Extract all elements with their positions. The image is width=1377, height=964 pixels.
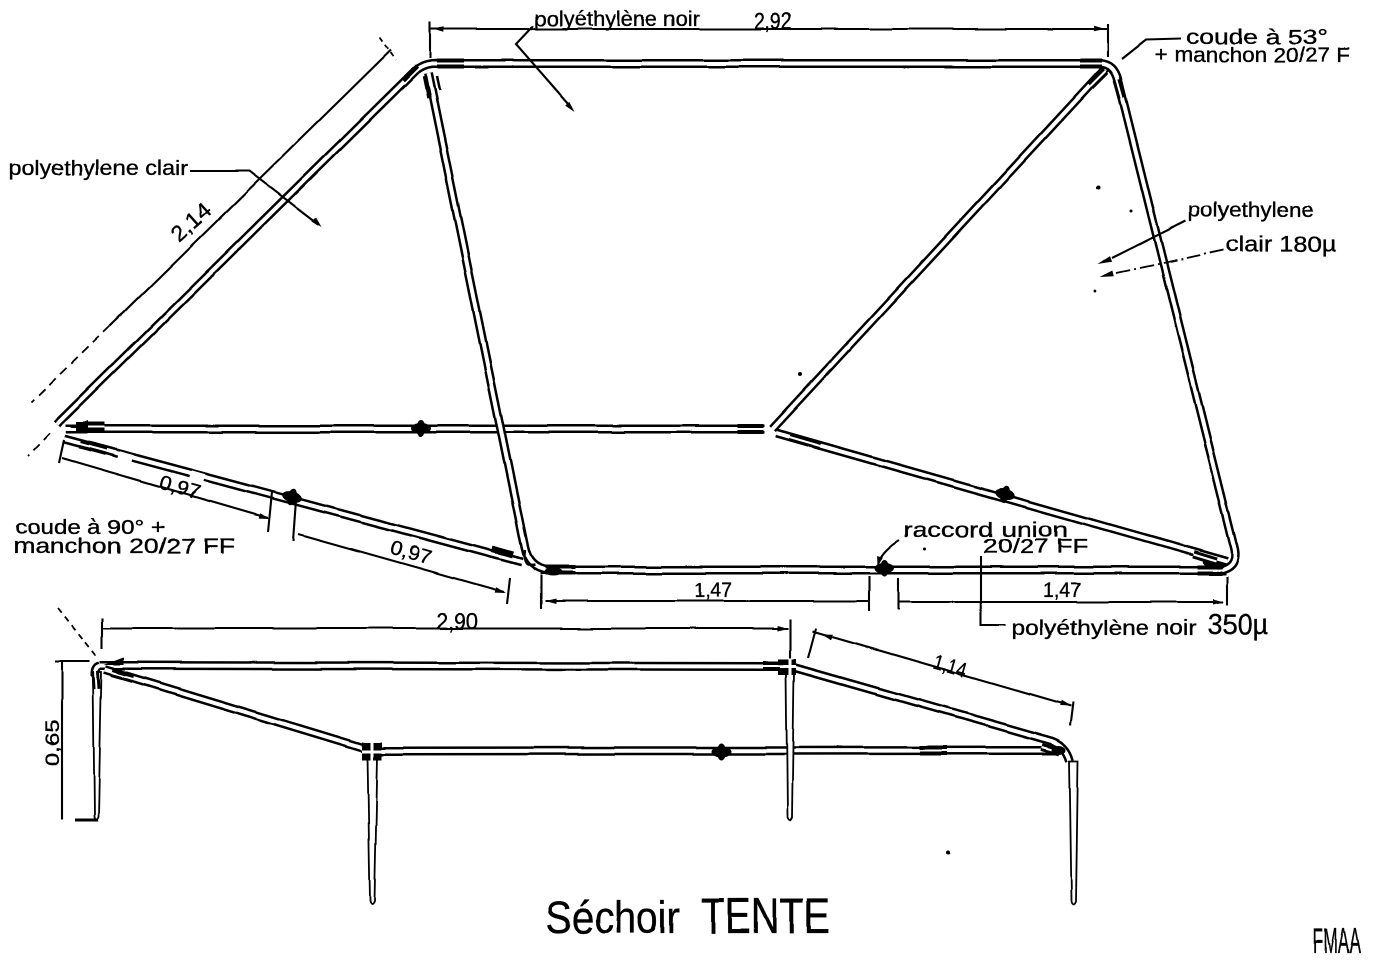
svg-text:polyéthylène noir: polyéthylène noir (534, 8, 700, 31)
svg-text:polyethylene: polyethylene (1188, 199, 1314, 222)
svg-text:20/27 FF: 20/27 FF (983, 536, 1088, 558)
svg-text:polyéthylène noir: polyéthylène noir (1012, 617, 1197, 640)
svg-text:FMAA: FMAA (1313, 920, 1360, 961)
svg-text:1,47: 1,47 (1043, 579, 1081, 602)
svg-text:manchon 20/27 FF: manchon 20/27 FF (13, 535, 235, 558)
svg-text:Séchoir: Séchoir (546, 892, 680, 943)
svg-text:+ manchon 20/27 F: + manchon 20/27 F (1155, 44, 1350, 67)
svg-text:350µ: 350µ (1208, 609, 1268, 641)
svg-text:0,65: 0,65 (42, 720, 64, 766)
svg-text:2,92: 2,92 (754, 8, 792, 35)
svg-text:TENTE: TENTE (701, 888, 830, 944)
svg-text:2,90: 2,90 (437, 608, 478, 634)
svg-text:polyethylene clair: polyethylene clair (8, 157, 188, 180)
svg-text:1,47: 1,47 (694, 579, 732, 602)
svg-text:clair 180µ: clair 180µ (1226, 232, 1336, 257)
